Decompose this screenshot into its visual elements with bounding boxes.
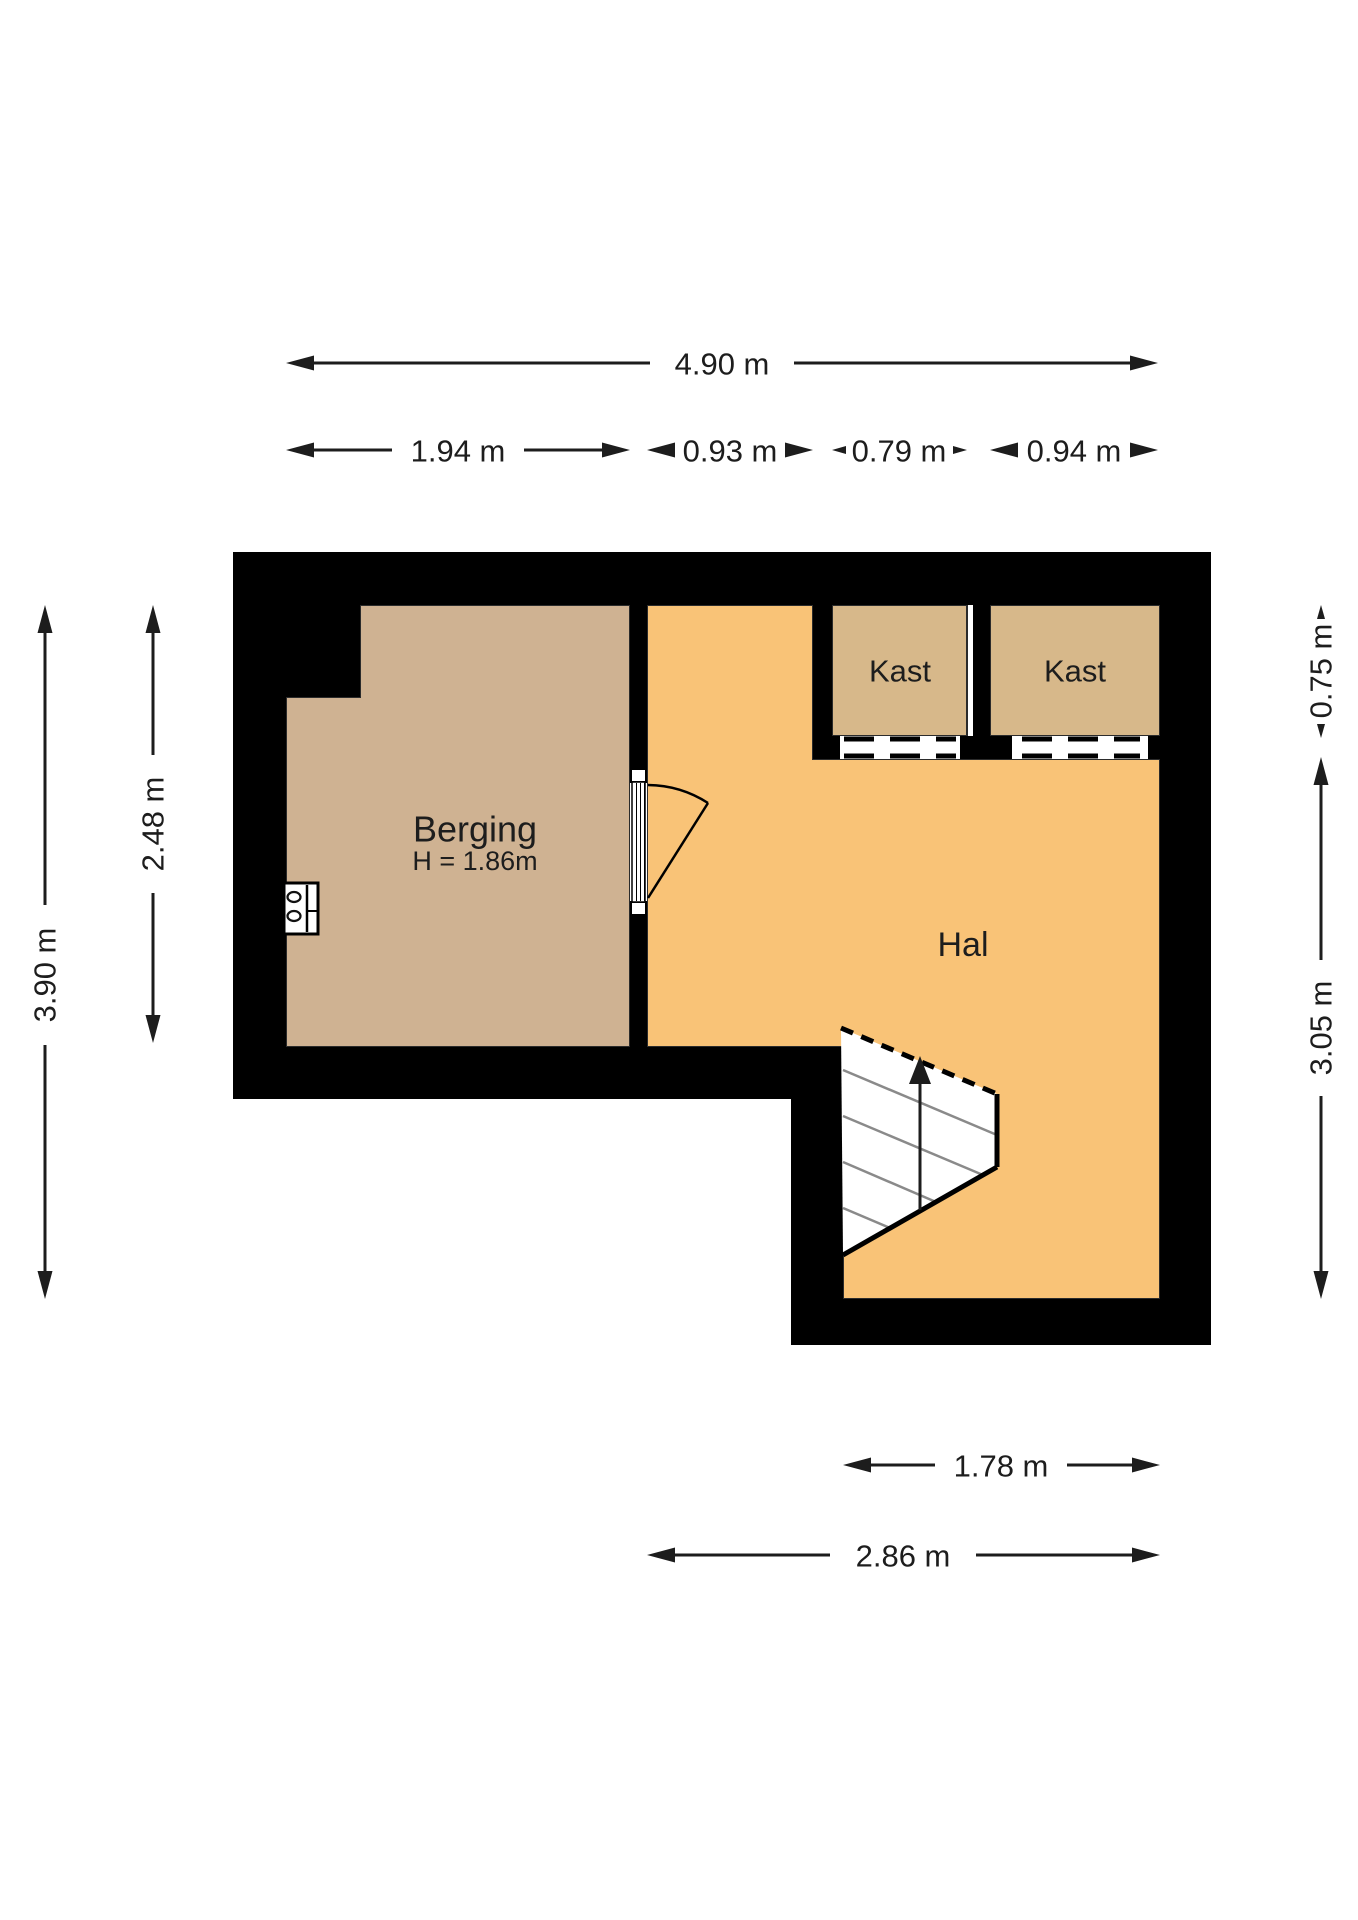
meter-knob bbox=[288, 892, 301, 902]
floorplan-canvas: Berging H = 1.86m Hal Kast Kast 4.90 m 1… bbox=[0, 0, 1358, 1920]
arrow-left-icon bbox=[832, 446, 846, 454]
kast1-label: Kast bbox=[869, 654, 931, 689]
arrow-left-icon bbox=[286, 443, 314, 458]
left-wall bbox=[233, 552, 286, 1099]
dimension-label: 4.90 m bbox=[675, 347, 770, 382]
dimension-label: 0.93 m bbox=[683, 434, 778, 469]
door-jamb-bottom bbox=[631, 902, 646, 915]
floors bbox=[286, 605, 1160, 1299]
meter-box bbox=[284, 883, 318, 934]
right-wall bbox=[1160, 552, 1211, 1345]
dimension-label: 1.94 m bbox=[411, 434, 506, 469]
arrow-right-icon bbox=[1132, 1548, 1160, 1563]
door-jamb-top bbox=[631, 769, 646, 782]
arrow-left-icon bbox=[990, 443, 1018, 458]
bottom-wall-hal bbox=[791, 1299, 1211, 1345]
arrow-left-icon bbox=[647, 1548, 675, 1563]
top-wall bbox=[233, 552, 1211, 605]
kast2-opening-post bbox=[1148, 736, 1160, 759]
arrow-left-icon bbox=[843, 1458, 871, 1473]
arrow-down-icon bbox=[1314, 1271, 1329, 1299]
floorplan-drawing: Berging H = 1.86m Hal Kast Kast 4.90 m 1… bbox=[0, 0, 1358, 1920]
dimension-label: 0.75 m bbox=[1304, 624, 1339, 719]
dimension-label: 3.05 m bbox=[1304, 981, 1339, 1076]
dimension-label: 0.94 m bbox=[1027, 434, 1122, 469]
bottom-wall-berging bbox=[233, 1047, 843, 1099]
kast-divider-post bbox=[960, 736, 1012, 759]
kast1-opening-post bbox=[832, 736, 840, 759]
berging-height-note: H = 1.86m bbox=[412, 846, 537, 876]
arrow-left-icon bbox=[647, 443, 675, 458]
door-frame-strip bbox=[632, 782, 645, 902]
dimension-berging-height: 2.48 m bbox=[136, 605, 171, 1043]
arrow-right-icon bbox=[785, 443, 813, 458]
kast-divider-wall bbox=[973, 605, 990, 736]
arrow-down-icon bbox=[1317, 724, 1325, 738]
arrow-up-icon bbox=[146, 605, 161, 633]
hal-label: Hal bbox=[937, 926, 988, 964]
arrow-up-icon bbox=[1314, 757, 1329, 785]
dimension-label: 0.79 m bbox=[852, 434, 947, 469]
dimension-kast2-width: 0.94 m bbox=[990, 434, 1158, 469]
dimension-top-total: 4.90 m bbox=[286, 347, 1158, 382]
dimension-kast1-width: 0.79 m bbox=[832, 434, 967, 469]
arrow-up-icon bbox=[1317, 605, 1325, 619]
dimension-label: 3.90 m bbox=[28, 928, 63, 1023]
arrow-down-icon bbox=[146, 1015, 161, 1043]
arrow-up-icon bbox=[38, 605, 53, 633]
arrow-down-icon bbox=[38, 1271, 53, 1299]
kast1-left-wall bbox=[813, 605, 832, 759]
arrow-right-icon bbox=[1130, 443, 1158, 458]
dimension-stairs-width: 1.78 m bbox=[843, 1449, 1160, 1484]
arrow-right-icon bbox=[602, 443, 630, 458]
dimension-kast-depth: 0.75 m bbox=[1304, 605, 1339, 738]
dimension-hal-top-width: 0.93 m bbox=[647, 434, 813, 469]
dimension-left-total-height: 3.90 m bbox=[28, 605, 63, 1299]
dimension-hal-width: 2.86 m bbox=[647, 1539, 1160, 1574]
berging-label: Berging bbox=[413, 809, 537, 850]
arrow-left-icon bbox=[286, 356, 314, 371]
utility-meter-icon bbox=[284, 883, 318, 934]
interior-wall-above-door bbox=[630, 605, 647, 768]
dimension-label: 1.78 m bbox=[954, 1449, 1049, 1484]
dimension-berging-width: 1.94 m bbox=[286, 434, 630, 469]
dimension-label: 2.86 m bbox=[856, 1539, 951, 1574]
dimension-hal-height: 3.05 m bbox=[1304, 757, 1339, 1299]
dimension-label: 2.48 m bbox=[136, 777, 171, 872]
arrow-right-icon bbox=[1130, 356, 1158, 371]
interior-wall-below-door bbox=[630, 916, 647, 1047]
arrow-right-icon bbox=[1132, 1458, 1160, 1473]
arrow-right-icon bbox=[953, 446, 967, 454]
meter-knob bbox=[288, 911, 301, 921]
kast2-label: Kast bbox=[1044, 654, 1106, 689]
